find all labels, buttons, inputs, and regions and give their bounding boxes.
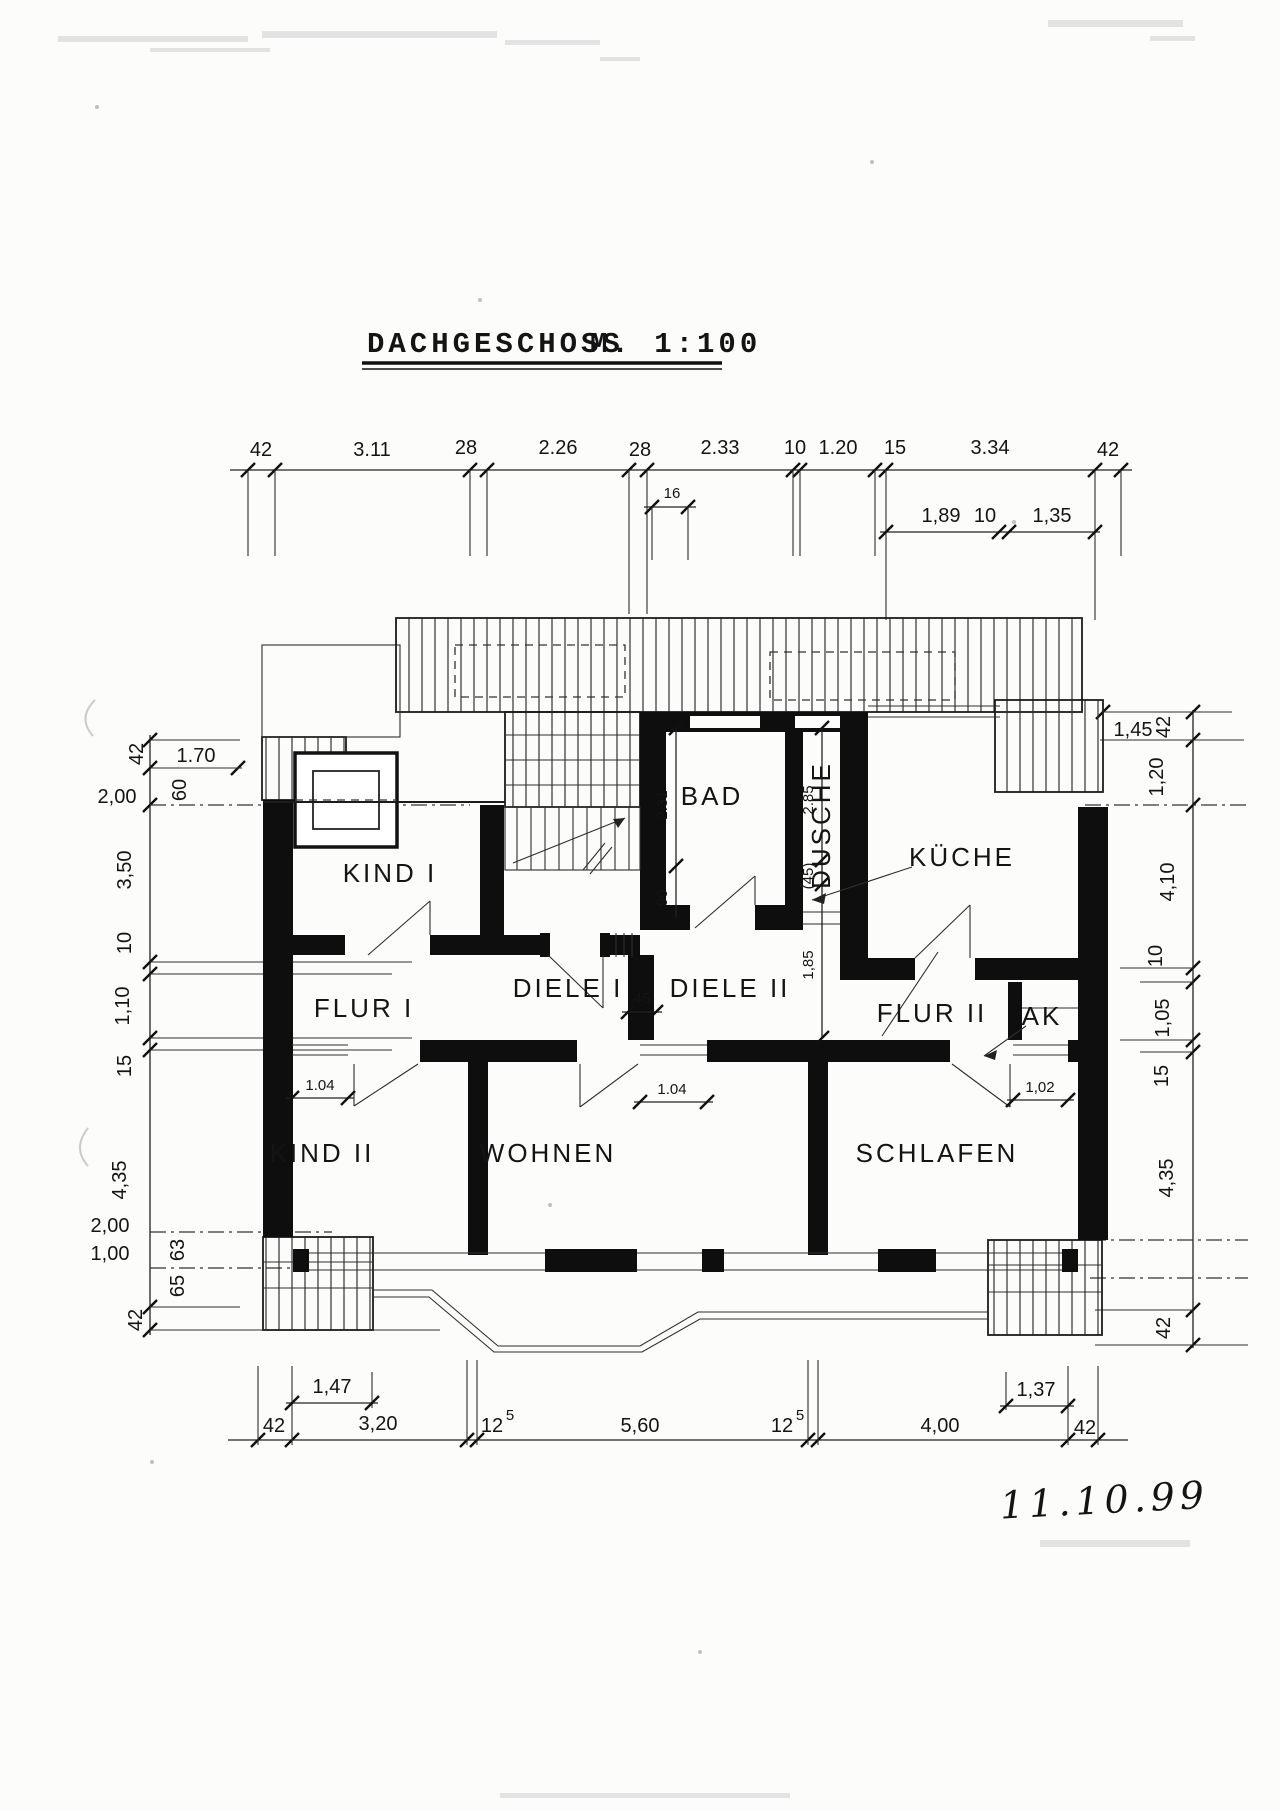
dim-left-3: 2,00 — [98, 786, 137, 808]
roof-hatch-top — [396, 618, 1082, 712]
room-label-flur1: FLUR I — [314, 993, 414, 1023]
dim-bottom-5-sup: 5 — [796, 1407, 804, 1424]
top-sub-dim-16: 16 — [644, 485, 696, 560]
dim-bottom-2: 12 — [481, 1415, 503, 1437]
room-label-kind1: KIND I — [343, 858, 438, 888]
dim-top-4: 28 — [629, 439, 651, 461]
dim-left-4: 3,50 — [114, 851, 136, 890]
right-chain-ticks — [1096, 705, 1200, 1352]
dim-left-11: 63 — [167, 1239, 189, 1261]
dim-top-sub16: 16 — [664, 485, 681, 502]
dim-left-5: 10 — [114, 932, 136, 954]
room-label-diele1: DIELE I — [513, 973, 624, 1003]
top-sub-chain: 1,89 10 1,35 — [879, 505, 1102, 539]
dim-right-8: 42 — [1153, 1317, 1175, 1339]
dim-bottom-8: 42 — [1074, 1417, 1096, 1439]
dim-top-0: 42 — [250, 439, 272, 461]
dim-left-7: 15 — [114, 1055, 136, 1077]
balcony-hatch-bottom-left — [263, 1237, 373, 1330]
dim-bottom-7: 4,00 — [921, 1415, 960, 1437]
dim-top-10: 42 — [1097, 439, 1119, 461]
bottom-wall — [293, 1249, 1078, 1272]
dim-right-6: 15 — [1151, 1065, 1173, 1087]
dim-top-9: 3.34 — [971, 437, 1010, 459]
drawing-title: DACHGESCHOSS M. 1:100 — [362, 328, 761, 369]
stairs — [505, 807, 640, 957]
room-label-dusche: DUSCHE — [806, 761, 836, 889]
dim-left-2: 60 — [169, 779, 191, 801]
top-chain-witness-lines — [248, 470, 1121, 620]
scan-artifacts — [58, 20, 1195, 1798]
date-text: 11.10.99 — [999, 1473, 1210, 1528]
title-scale: M. 1:100 — [590, 328, 761, 361]
dim-bottom-5: 12 — [771, 1415, 793, 1437]
dim-top-sub-0: 1,89 — [922, 505, 961, 527]
dim-right-1: 42 — [1153, 716, 1175, 738]
room-label-schlafen: SCHLAFEN — [856, 1138, 1019, 1168]
dim-diele-pass: 45 — [634, 990, 651, 1007]
dim-bottom-2-sup: 5 — [506, 1407, 514, 1424]
dim-right-4: 10 — [1145, 945, 1167, 967]
dormer-hatch-right — [995, 700, 1103, 792]
dim-bottom-sub-0: 1,47 — [313, 1376, 352, 1398]
scanned-floor-plan-page: DACHGESCHOSS M. 1:100 42 3.11 28 2.2 — [0, 0, 1280, 1811]
room-label-ak: AK — [1022, 1001, 1063, 1031]
room-label-wohnen: WOHNEN — [480, 1138, 616, 1168]
dim-right-5: 1,05 — [1152, 999, 1174, 1038]
dim-right-7: 4,35 — [1156, 1159, 1178, 1198]
date-annotation: 11.10.99 — [999, 1473, 1210, 1528]
dim-bad-depth: 2.31 — [654, 790, 671, 819]
dim-left-13: 42 — [125, 1309, 147, 1331]
dim-top-7: 1.20 — [819, 437, 858, 459]
dim-left-6: 1,10 — [112, 987, 134, 1026]
bottom-dimension-chain: 42 3,20 12 5 5,60 12 5 4,00 42 1,47 1,37 — [228, 1360, 1128, 1447]
title-text: DACHGESCHOSS — [367, 328, 624, 361]
room-label-kind2: KIND II — [270, 1138, 375, 1168]
dim-top-1: 3.11 — [353, 439, 390, 461]
dim-left-12: 65 — [167, 1275, 189, 1297]
dim-bottom-1: 3,20 — [359, 1413, 398, 1435]
canopy-outline — [373, 1290, 988, 1352]
dim-bad-door: 90 — [654, 890, 671, 907]
left-chain-ticks — [143, 733, 245, 1337]
dim-right-2: 1,20 — [1146, 758, 1168, 797]
balcony-hatch-bottom-right — [988, 1240, 1102, 1335]
dim-left-9: 2,00 — [91, 1215, 130, 1237]
dim-left-1: 1.70 — [177, 745, 216, 767]
dim-wohnen-window: 1.04 — [657, 1081, 686, 1098]
dim-top-5: 2.33 — [701, 437, 740, 459]
dim-top-2: 28 — [455, 437, 477, 459]
dim-diele2-width: 1,85 — [800, 950, 817, 979]
bottom-sub-dim-137: 1,37 — [999, 1379, 1075, 1413]
right-dimension-chain: 1,45 42 1,20 4,10 10 1,05 15 4,35 42 — [1085, 705, 1248, 1352]
dim-right-0: 1,45 — [1114, 719, 1153, 741]
chimney — [295, 753, 397, 847]
top-dimension-chain: 42 3.11 28 2.26 28 2.33 10 1.20 15 3.34 … — [230, 437, 1132, 620]
dim-top-sub-2: 1,35 — [1033, 505, 1072, 527]
dim-top-8: 15 — [884, 437, 906, 459]
dim-kind2-window: 1.04 — [305, 1077, 334, 1094]
dim-top-3: 2.26 — [539, 437, 578, 459]
interior-dimensions: 2.31 90 2.85 (45) 1,85 45 1.04 1.04 — [285, 721, 1075, 1109]
dim-right-3: 4,10 — [1157, 863, 1179, 902]
dim-bottom-0: 42 — [263, 1415, 285, 1437]
room-label-bad: BAD — [681, 781, 743, 811]
left-terrace-outline — [262, 645, 400, 737]
dim-left-8: 4,35 — [109, 1161, 131, 1200]
dim-left-10: 1,00 — [91, 1243, 130, 1265]
dim-top-6: 10 — [784, 437, 806, 459]
dim-bottom-sub-1: 1,37 — [1017, 1379, 1056, 1401]
bottom-sub-dim-147: 1,47 — [285, 1376, 379, 1410]
room-label-diele2: DIELE II — [670, 973, 791, 1003]
dim-bottom-4: 5,60 — [621, 1415, 660, 1437]
dim-schlafen-window: 1,02 — [1025, 1079, 1054, 1096]
dim-top-sub-1: 10 — [974, 505, 996, 527]
dim-left-0: 42 — [126, 743, 148, 765]
floor-plan: 2.31 90 2.85 (45) 1,85 45 1.04 1.04 — [262, 618, 1108, 1352]
room-label-kueche: KÜCHE — [909, 842, 1015, 872]
room-label-flur2: FLUR II — [877, 998, 988, 1028]
